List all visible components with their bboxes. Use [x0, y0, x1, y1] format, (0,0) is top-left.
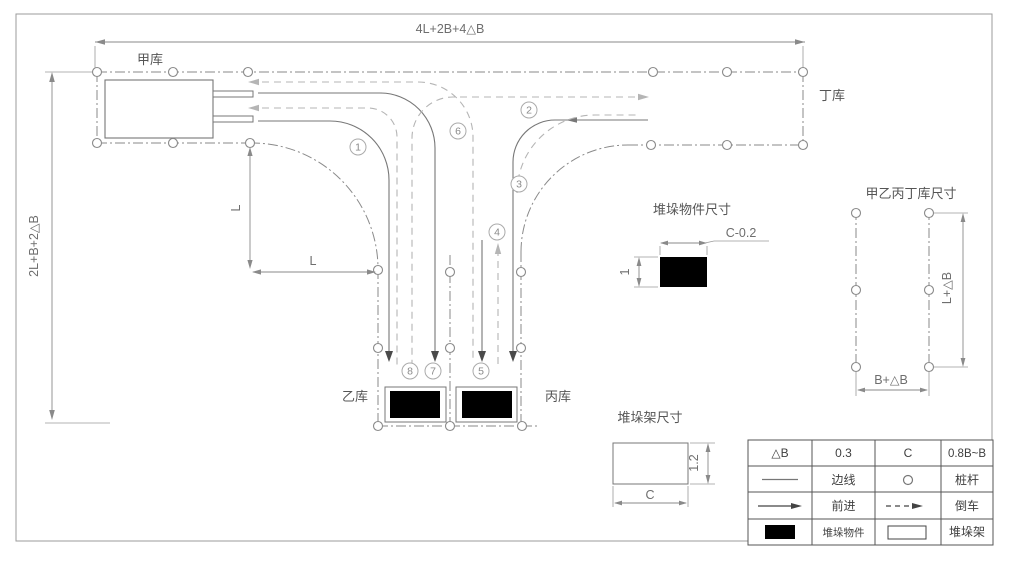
stack-rack-icon [613, 443, 688, 484]
warehouse-size-title: 甲乙丙丁库尺寸 [865, 186, 956, 201]
stack-object-icon [660, 257, 707, 287]
svg-text:6: 6 [455, 126, 461, 138]
l-horizontal-label: L [310, 254, 317, 268]
warehouse-d-label: 丁库 [819, 88, 845, 103]
svg-text:7: 7 [430, 366, 436, 378]
svg-text:5: 5 [478, 366, 484, 378]
pile-rod-icon [904, 476, 913, 485]
vehicle-outline [105, 80, 253, 138]
route-marker-4: 4 [489, 224, 505, 240]
warehouse-b-label: 乙库 [342, 389, 368, 404]
svg-text:8: 8 [407, 366, 413, 378]
route-marker-5: 5 [473, 363, 489, 379]
legend-forward-label: 前进 [831, 498, 855, 513]
warehouse-size-detail: 甲乙丙丁库尺寸 L+△B B+△B [852, 186, 969, 396]
fork-upper-icon [213, 91, 253, 97]
stack-object-height-label: 1 [618, 268, 632, 275]
stack-rack-height-label: 1.2 [687, 454, 701, 471]
warehouse-a-label: 甲库 [137, 52, 163, 67]
diagram-canvas: 4L+2B+4△B 2L+B+2△B 甲库 丁库 [0, 0, 1021, 569]
warehouse-width-label: B+△B [874, 373, 908, 387]
stack-object-size-title: 堆垛物件尺寸 [653, 202, 731, 217]
forward-down-arrow-icon [478, 351, 486, 362]
fork-lower-icon [213, 116, 253, 122]
stack-rack-size-detail: 堆垛架尺寸 1.2 C [613, 410, 715, 507]
route-marker-1: 1 [350, 139, 366, 155]
legend-stack-object-label: 堆垛物件 [823, 526, 865, 539]
stacking-racks [385, 387, 517, 422]
l-vertical-label: L [229, 204, 243, 211]
legend-delta-b: △B [771, 446, 788, 460]
stack-object-size-detail: 堆垛物件尺寸 C-0.2 1 [618, 202, 769, 287]
legend-c-value: 0.8B~B [948, 448, 986, 460]
reverse-left-arrow-icon [248, 105, 259, 111]
route-marker-3: 3 [511, 176, 527, 192]
svg-text:2: 2 [526, 105, 532, 117]
legend-edge-line-label: 边线 [831, 473, 855, 487]
svg-text:1: 1 [355, 142, 361, 154]
stack-object-c [462, 391, 512, 418]
route-marker-2: 2 [521, 102, 537, 118]
forward-down-arrow-icon [509, 351, 517, 362]
svg-text:4: 4 [494, 227, 500, 239]
top-dimension: 4L+2B+4△B [95, 22, 805, 70]
svg-text:3: 3 [516, 179, 522, 191]
route-marker-8: 8 [402, 363, 418, 379]
warehouse-height-label: L+△B [940, 272, 954, 304]
left-dimension-label: 2L+B+2△B [27, 215, 41, 277]
reverse-up-arrow-icon [495, 243, 501, 254]
stack-rack-size-title: 堆垛架尺寸 [617, 410, 682, 425]
legend-delta-b-value: 0.3 [835, 446, 852, 460]
reverse-right-arrow-icon [638, 94, 649, 100]
legend-c: C [904, 446, 913, 460]
stack-object-width-label: C-0.2 [726, 226, 757, 240]
stack-object-b [390, 391, 440, 418]
stack-rack-width-label: C [645, 488, 654, 502]
warehouse-c-label: 丙库 [545, 389, 571, 404]
top-dimension-label: 4L+2B+4△B [416, 22, 485, 36]
reverse-paths [248, 79, 649, 368]
left-dimension: 2L+B+2△B [27, 72, 110, 423]
legend-pile-rod-label: 桩杆 [955, 472, 979, 487]
legend-reverse-label: 倒车 [955, 498, 979, 513]
l-dimensions: L L [229, 147, 376, 275]
route-marker-6: 6 [450, 123, 466, 139]
reverse-left-arrow-icon [248, 79, 259, 85]
legend-table: △B 0.3 C 0.8B~B 边线 桩杆 前进 倒车 堆垛物件 堆垛架 [748, 440, 993, 545]
forward-down-arrow-icon [431, 351, 439, 362]
legend-stack-rack-label: 堆垛架 [949, 524, 985, 539]
route-marker-7: 7 [425, 363, 441, 379]
stack-object-legend-icon [765, 525, 795, 539]
forward-down-arrow-icon [385, 351, 393, 362]
stack-rack-legend-icon [888, 526, 926, 539]
forklift-test-course-diagram: 4L+2B+4△B 2L+B+2△B 甲库 丁库 [0, 0, 1021, 569]
